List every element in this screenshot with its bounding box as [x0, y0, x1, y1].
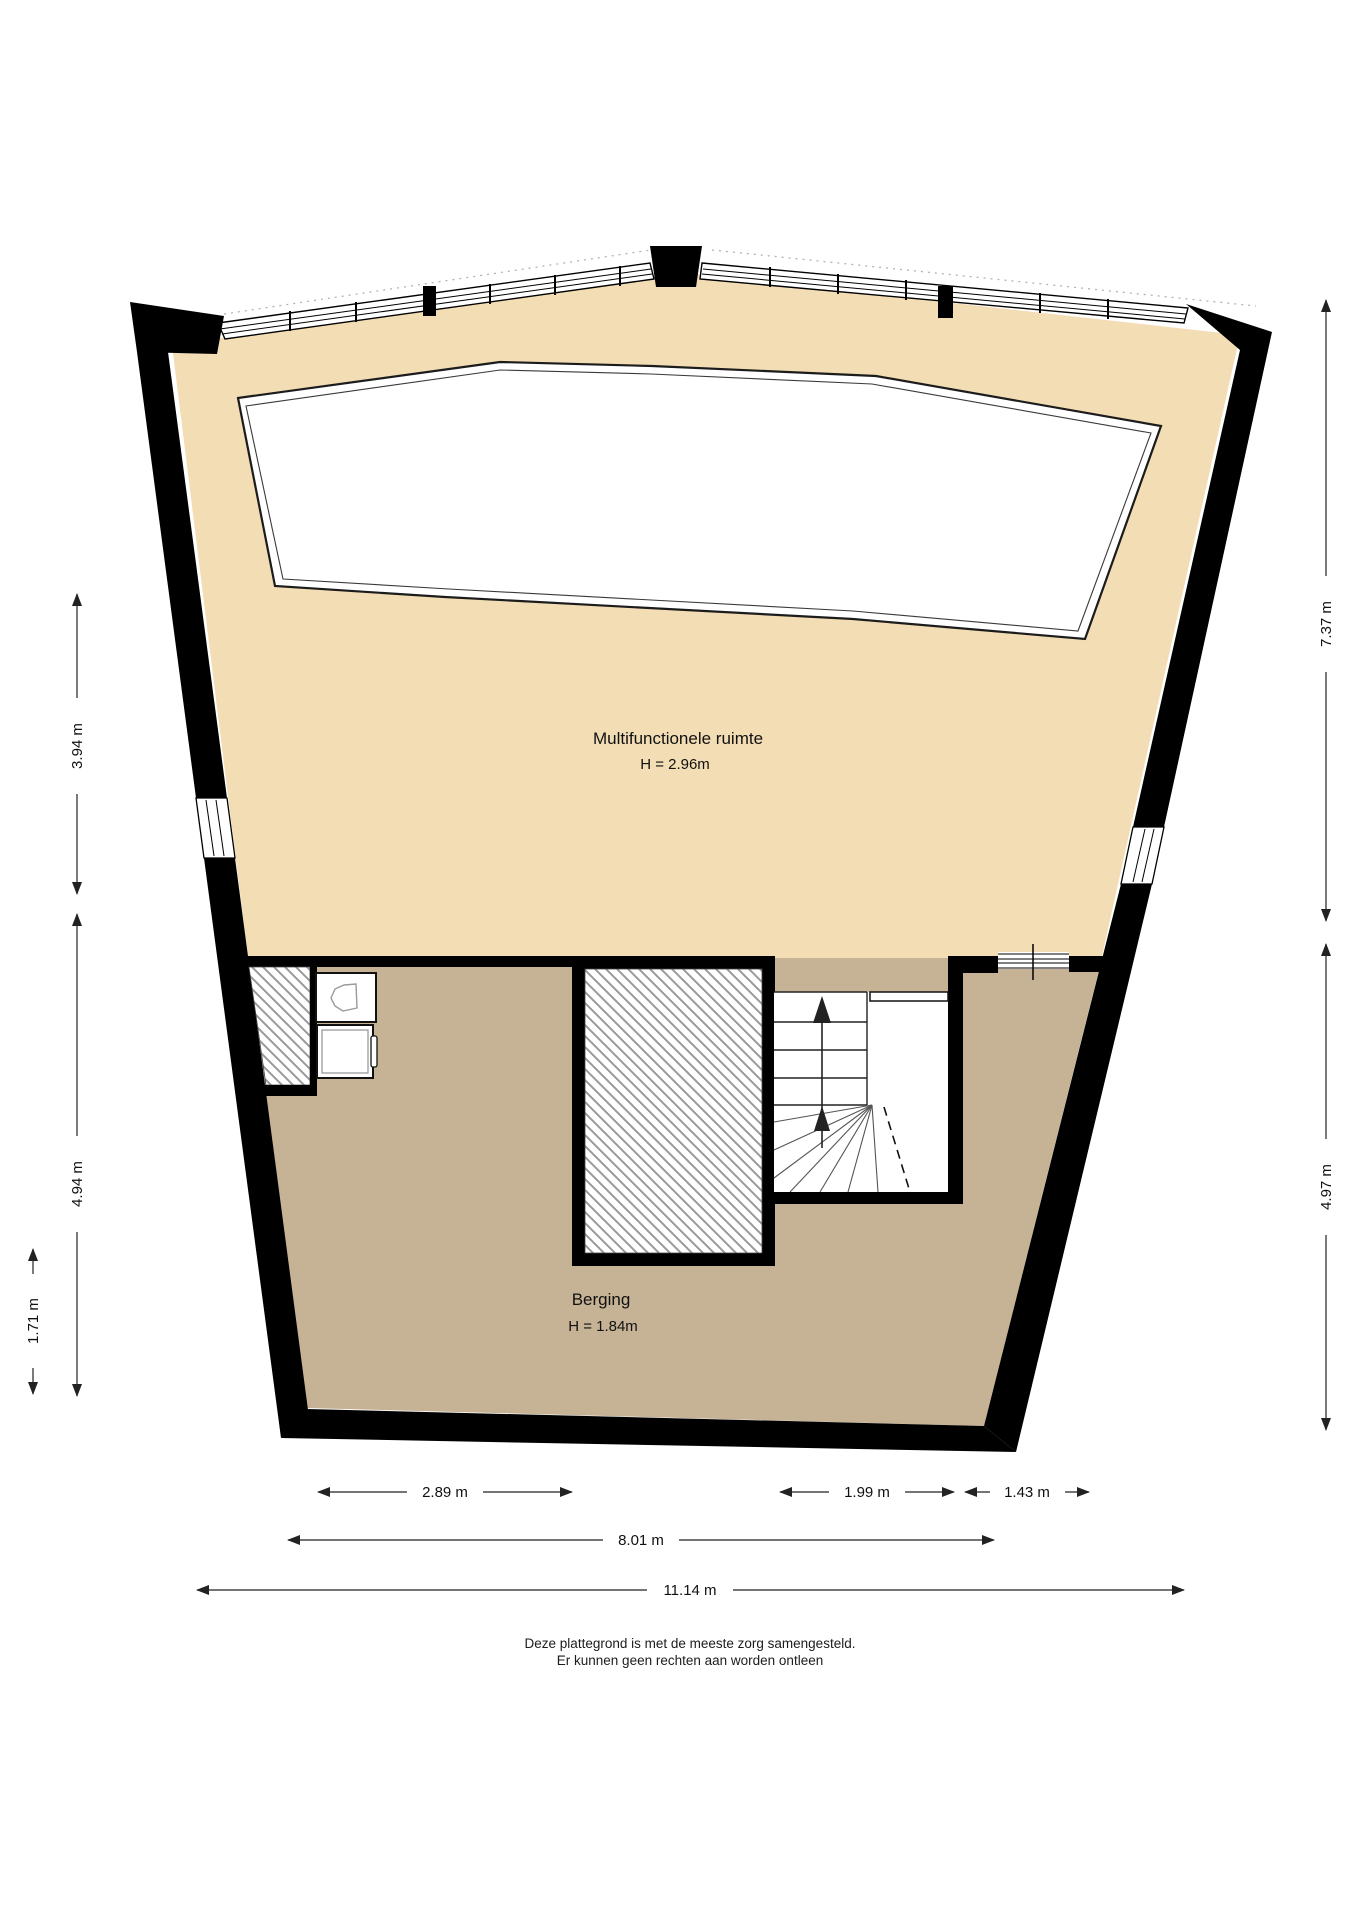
hatched-zone-large [572, 956, 775, 1266]
svg-text:1.99 m: 1.99 m [844, 1484, 890, 1501]
dimension-bottom-801: 8.01 m [287, 1530, 995, 1550]
stair-wall-bottom [760, 1192, 963, 1204]
boiler-fixture [317, 1025, 377, 1078]
svg-text:7.37 m: 7.37 m [1318, 601, 1335, 647]
dimension-right-737: 7.37 m [1316, 299, 1336, 922]
svg-text:1.71 m: 1.71 m [25, 1298, 42, 1344]
divider-right-part [1069, 956, 1103, 972]
svg-text:4.94 m: 4.94 m [69, 1161, 86, 1207]
post-right [938, 286, 953, 318]
svg-text:2.89 m: 2.89 m [422, 1484, 468, 1501]
disclaimer-line-2: Er kunnen geen rechten aan worden ontlee… [557, 1653, 823, 1668]
room-height-berging: H = 1.84m [568, 1318, 638, 1335]
floorplan-page: Multifunctionele ruimte H = 2.96m Bergin… [0, 0, 1358, 1920]
window-left-wall [196, 798, 235, 858]
toilet-fixture [316, 973, 376, 1022]
svg-text:8.01 m: 8.01 m [618, 1532, 664, 1549]
divider-mid-part [948, 956, 998, 973]
svg-text:11.14 m: 11.14 m [663, 1582, 716, 1599]
post-apex [650, 246, 702, 287]
room-height-multifunctionele: H = 2.96m [640, 756, 710, 773]
dimension-left-171: 1.71 m [23, 1248, 43, 1395]
stair-wall-right [948, 956, 963, 1204]
dimension-left-494: 4.94 m [67, 913, 87, 1397]
staircase [774, 992, 948, 1192]
dimension-bottom-1114: 11.14 m [196, 1580, 1185, 1600]
dimension-bottom-199: 1.99 m [779, 1482, 955, 1502]
post-left [423, 286, 436, 316]
dimension-left-394: 3.94 m [67, 593, 87, 895]
disclaimer-line-1: Deze plattegrond is met de meeste zorg s… [525, 1636, 856, 1651]
stair-railing [870, 992, 948, 1001]
svg-text:1.43 m: 1.43 m [1004, 1484, 1050, 1501]
svg-text:4.97 m: 4.97 m [1318, 1164, 1335, 1210]
wall-corner-top-left [130, 302, 224, 354]
dimension-bottom-143: 1.43 m [964, 1482, 1090, 1502]
room-label-multifunctionele: Multifunctionele ruimte [593, 729, 763, 748]
floorplan-svg: Multifunctionele ruimte H = 2.96m Bergin… [0, 0, 1358, 1920]
dimension-bottom-289: 2.89 m [317, 1482, 573, 1502]
dimension-right-497: 4.97 m [1316, 943, 1336, 1431]
room-label-berging: Berging [572, 1290, 631, 1309]
svg-text:3.94 m: 3.94 m [69, 723, 86, 769]
